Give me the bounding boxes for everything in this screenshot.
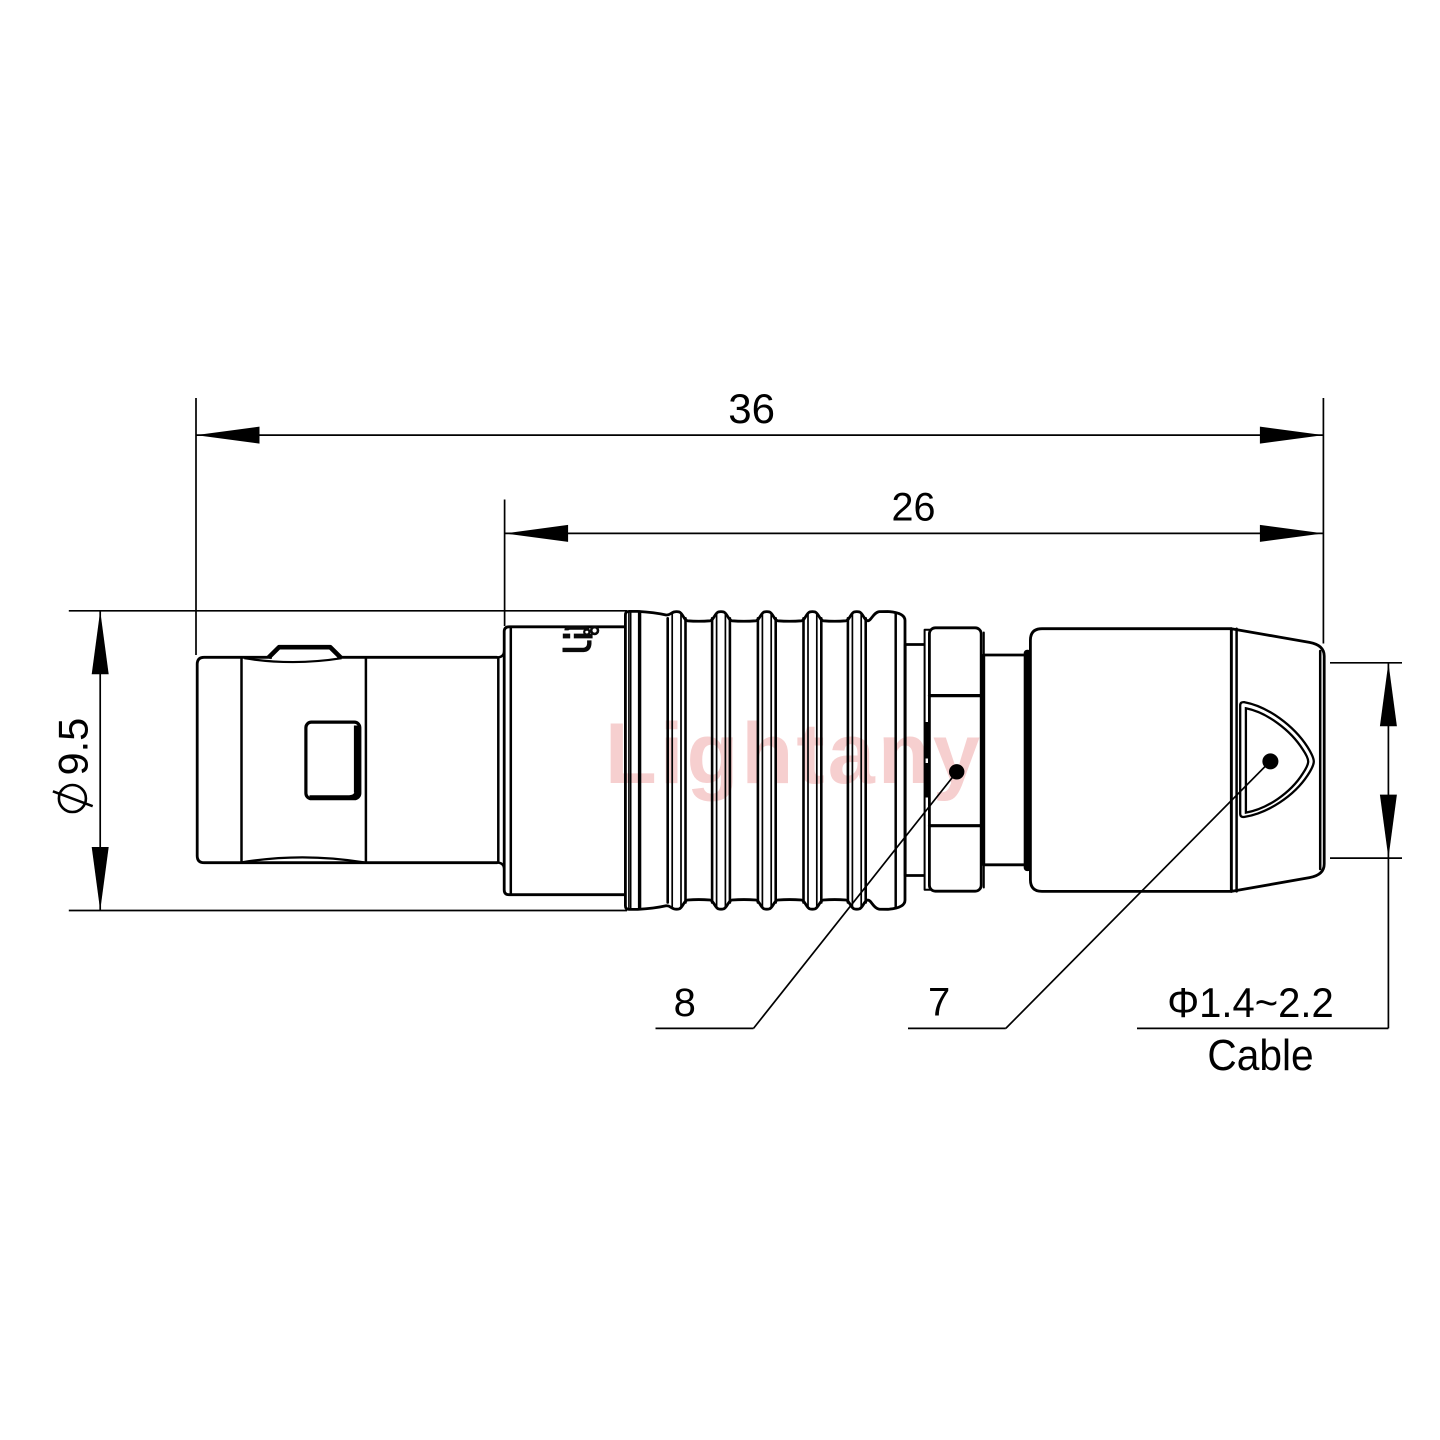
svg-text:36: 36 xyxy=(728,385,775,432)
svg-text:26: 26 xyxy=(892,486,936,530)
svg-text:8: 8 xyxy=(674,981,696,1025)
svg-text:Φ1.4~2.2: Φ1.4~2.2 xyxy=(1167,979,1334,1026)
svg-text:9.5: 9.5 xyxy=(50,718,97,776)
svg-text:7: 7 xyxy=(928,981,950,1025)
svg-text:Cable: Cable xyxy=(1207,1032,1313,1080)
svg-text:Lightany: Lightany xyxy=(605,706,983,802)
